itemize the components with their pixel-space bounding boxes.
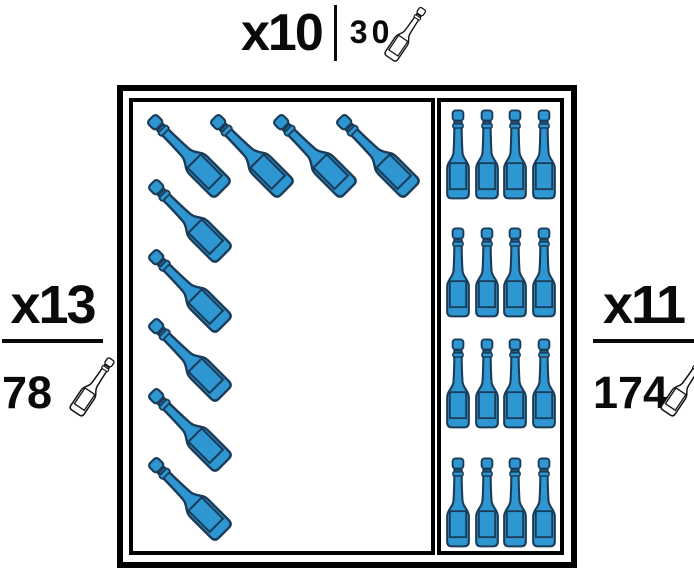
left-compartment (129, 98, 435, 555)
left-label: x13 78 (2, 278, 103, 419)
left-divider-line (2, 339, 103, 343)
left-multiplier: x13 (2, 278, 103, 332)
wine-bottle-icon (84, 353, 103, 419)
right-label: x11 174 (593, 278, 694, 419)
left-count: 78 (2, 356, 52, 415)
bottle-counting-puzzle: x10 30 x13 78 x11 174 (0, 0, 694, 571)
right-multiplier: x11 (593, 278, 694, 332)
top-label: x10 30 (241, 2, 416, 64)
right-count: 174 (593, 356, 668, 415)
wine-bottle-icon (397, 3, 416, 64)
wine-bottle-icon (675, 353, 694, 419)
top-divider-line (334, 5, 337, 61)
top-multiplier: x10 (241, 7, 322, 59)
right-divider-line (593, 339, 694, 343)
right-compartment (437, 98, 564, 555)
